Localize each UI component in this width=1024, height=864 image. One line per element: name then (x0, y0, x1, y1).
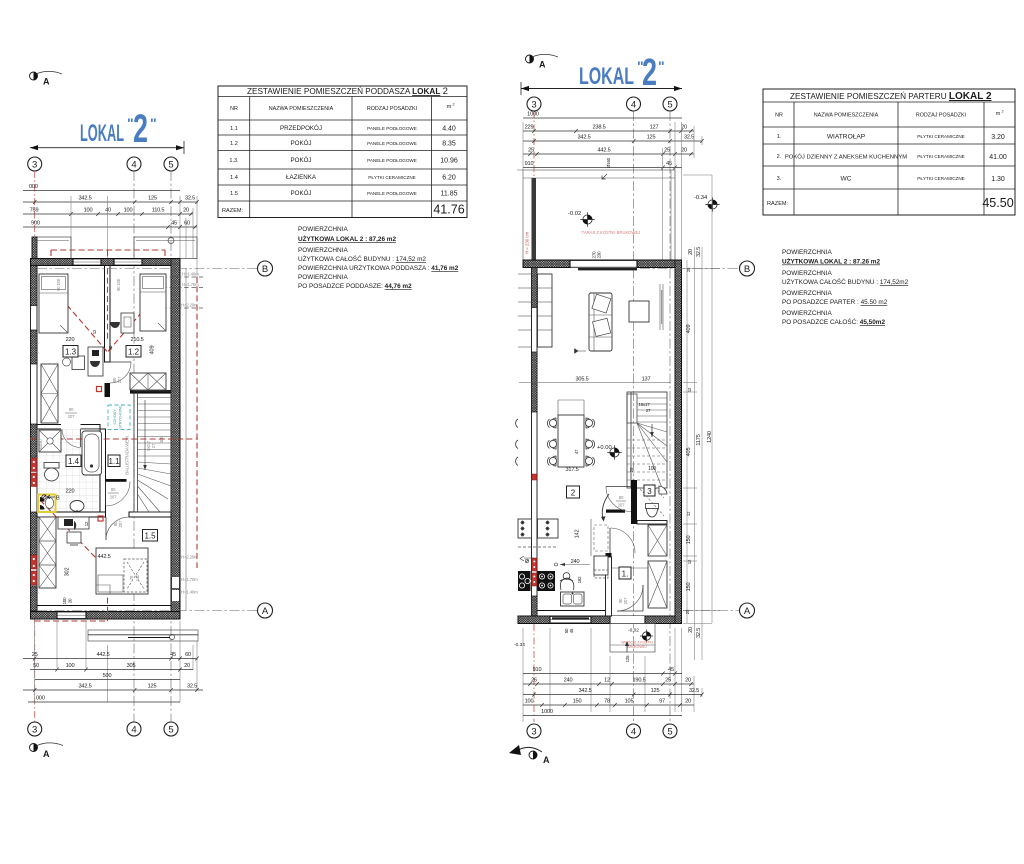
svg-text:229: 229 (525, 125, 534, 131)
svg-text:1.5: 1.5 (144, 532, 156, 541)
svg-text:150: 150 (686, 536, 692, 545)
svg-text:16x17: 16x17 (639, 402, 651, 407)
svg-text:240: 240 (571, 559, 580, 565)
svg-text:NR: NR (230, 106, 238, 112)
svg-text:H=2.20m: H=2.20m (181, 303, 198, 308)
svg-text:1.2: 1.2 (128, 348, 140, 357)
svg-text:12: 12 (687, 559, 692, 564)
svg-text:": " (150, 115, 157, 131)
svg-text:125: 125 (647, 135, 656, 141)
svg-text:142: 142 (575, 530, 581, 539)
svg-text:1.: 1. (622, 570, 629, 579)
svg-text:PANELE PODŁOGOWE: PANELE PODŁOGOWE (367, 126, 417, 131)
svg-text:NR: NR (775, 113, 783, 119)
svg-text:3: 3 (32, 725, 37, 736)
svg-text:POWIERZCHNIA: POWIERZCHNIA (782, 270, 832, 277)
svg-text:4: 4 (131, 160, 136, 171)
svg-text:442.5: 442.5 (97, 652, 110, 658)
svg-text:182: 182 (577, 576, 582, 583)
svg-text:25: 25 (665, 678, 671, 684)
svg-text:PANELE PODŁOGOWE: PANELE PODŁOGOWE (367, 191, 417, 196)
svg-text:150: 150 (573, 699, 582, 705)
svg-text:-0.34: -0.34 (514, 642, 525, 648)
svg-text:317.5: 317.5 (566, 467, 579, 473)
svg-text:PO POSADZCE CAŁOŚĆ: 45,50m2: PO POSADZCE CAŁOŚĆ: 45,50m2 (782, 317, 885, 326)
svg-text:1.3.: 1.3. (229, 158, 239, 164)
svg-text:50: 50 (33, 663, 39, 669)
svg-text:NAZWA POMIESZCZENIA: NAZWA POMIESZCZENIA (814, 113, 879, 119)
svg-text:20: 20 (685, 678, 691, 684)
svg-text:100: 100 (66, 663, 75, 669)
svg-text:80: 80 (619, 495, 624, 500)
svg-text:A: A (262, 606, 269, 617)
svg-text:405: 405 (686, 448, 692, 457)
svg-text:POKÓJ: POKÓJ (291, 140, 312, 147)
svg-text:25: 25 (32, 652, 38, 658)
svg-text:000: 000 (29, 184, 38, 190)
svg-text:190.5: 190.5 (633, 678, 646, 684)
svg-text:90 100: 90 100 (56, 278, 61, 291)
svg-text:137: 137 (642, 377, 651, 383)
svg-text:12: 12 (92, 329, 97, 334)
svg-text:-0.34: -0.34 (694, 195, 708, 201)
svg-text:78: 78 (604, 699, 610, 705)
svg-text:A: A (43, 77, 50, 87)
svg-text:RODZAJ POSADZKI: RODZAJ POSADZKI (367, 106, 417, 112)
svg-text:207: 207 (623, 597, 628, 604)
svg-text:PŁYTKI CERAMICZNE: PŁYTKI CERAMICZNE (917, 154, 964, 159)
svg-text:H=1.40m: H=1.40m (182, 272, 199, 277)
svg-text:500: 500 (103, 673, 112, 679)
svg-text:12: 12 (687, 387, 692, 392)
svg-text:12: 12 (686, 511, 691, 516)
svg-text:20: 20 (688, 627, 694, 633)
svg-text:302: 302 (65, 568, 71, 577)
svg-text:25: 25 (686, 267, 691, 272)
svg-text:PANELE PODŁOGOWE: PANELE PODŁOGOWE (367, 158, 417, 163)
svg-text:342.5: 342.5 (79, 684, 92, 690)
svg-text:32.5: 32.5 (689, 688, 699, 694)
svg-text:32.5: 32.5 (696, 628, 702, 638)
svg-text:40: 40 (105, 208, 111, 214)
svg-text:B: B (744, 264, 750, 275)
svg-text:PRZEDPOKÓJ: PRZEDPOKÓJ (280, 125, 322, 132)
svg-text:TARAS Z KOSTKI BRUKOWEJ: TARAS Z KOSTKI BRUKOWEJ (582, 230, 641, 235)
svg-text:41.00: 41.00 (989, 154, 1007, 161)
svg-text:POWIERZCHNIA: POWIERZCHNIA (782, 290, 832, 297)
svg-text:900: 900 (31, 221, 40, 227)
svg-text:-0.02: -0.02 (628, 628, 639, 634)
svg-text:1000: 1000 (527, 112, 539, 118)
svg-text:5: 5 (667, 727, 672, 738)
svg-text:12: 12 (84, 521, 89, 526)
svg-text:305: 305 (127, 663, 136, 669)
svg-text:PŁYTKI CERAMICZNE: PŁYTKI CERAMICZNE (917, 134, 964, 139)
svg-text:127: 127 (650, 125, 659, 131)
svg-text:5: 5 (168, 725, 173, 736)
svg-text:60: 60 (185, 652, 191, 658)
svg-text:150: 150 (686, 583, 692, 592)
svg-text:3.: 3. (777, 176, 782, 182)
svg-text:NAZWA POMIESZCZENIA: NAZWA POMIESZCZENIA (269, 106, 334, 112)
svg-text:1.5: 1.5 (230, 191, 238, 197)
svg-text:A: A (744, 606, 751, 617)
svg-text:H = 230 cm: H = 230 cm (525, 231, 530, 254)
svg-text:20: 20 (68, 598, 73, 603)
svg-text:H=1.70m: H=1.70m (182, 282, 199, 287)
svg-text:1.1: 1.1 (108, 457, 120, 466)
svg-text:POKÓJ: POKÓJ (291, 157, 312, 164)
svg-text:UŻYTKOWA LOKAL 2 : 87.26 m2: UŻYTKOWA LOKAL 2 : 87.26 m2 (782, 257, 880, 266)
svg-text:3: 3 (647, 487, 652, 496)
svg-text:B: B (56, 496, 60, 502)
svg-text:1175: 1175 (696, 434, 702, 445)
svg-text:ZESTAWIENIE POMIESZCZEŃ PODDAS: ZESTAWIENIE POMIESZCZEŃ PODDASZA LOKAL 2 (247, 86, 448, 97)
svg-text:105: 105 (625, 699, 634, 705)
svg-text:910: 910 (533, 667, 542, 673)
svg-text:POWIERZCHNIA URZYTKOWA PODDASZ: POWIERZCHNIA URZYTKOWA PODDASZA : 41,76 … (298, 265, 459, 272)
svg-text:125: 125 (651, 688, 660, 694)
svg-text:A: A (539, 60, 546, 70)
svg-text:409: 409 (150, 346, 156, 355)
svg-text:25: 25 (629, 467, 634, 472)
svg-text:11.85: 11.85 (441, 191, 458, 198)
svg-text:B: B (262, 264, 268, 275)
svg-text:60: 60 (184, 221, 190, 227)
svg-text:ZESTAWIENIE POMIESZCZEŃ PARTER: ZESTAWIENIE POMIESZCZEŃ PARTERU LOKAL 2 (790, 91, 992, 102)
svg-text:PŁYTKI CERAMICZNE: PŁYTKI CERAMICZNE (368, 175, 415, 180)
svg-text:WIATROŁAP: WIATROŁAP (827, 134, 866, 141)
svg-text:100: 100 (648, 466, 656, 472)
svg-text:LOKAL: LOKAL (579, 63, 634, 90)
svg-text:80: 80 (111, 487, 116, 492)
svg-text:20: 20 (685, 699, 691, 705)
svg-text:3.20: 3.20 (991, 134, 1005, 141)
svg-text:100: 100 (525, 699, 534, 705)
svg-text:342.5: 342.5 (578, 135, 591, 141)
svg-text:45.50: 45.50 (982, 196, 1013, 210)
svg-text:2: 2 (571, 489, 576, 498)
svg-text:45: 45 (171, 221, 177, 227)
svg-text:1.1: 1.1 (230, 126, 238, 132)
svg-text:100: 100 (124, 208, 133, 214)
svg-text:409: 409 (686, 325, 692, 334)
svg-text:-0.02: -0.02 (568, 211, 581, 217)
svg-text:3: 3 (32, 160, 37, 171)
svg-text:000: 000 (36, 696, 45, 702)
svg-text:100: 100 (62, 597, 67, 604)
svg-text:PO POSADZCE PODDASZE: 44,76 m: PO POSADZCE PODDASZE: 44,76 m2 (298, 283, 412, 290)
svg-text:1.4: 1.4 (230, 175, 238, 181)
svg-text:1.30: 1.30 (991, 176, 1005, 183)
svg-text:207: 207 (110, 495, 117, 500)
svg-text:m: m (447, 104, 452, 110)
svg-text:32.5: 32.5 (696, 247, 702, 257)
svg-text:25: 25 (664, 148, 670, 154)
svg-text:32.5: 32.5 (684, 135, 694, 141)
svg-text:RODZAJ POSADZKI: RODZAJ POSADZKI (916, 113, 966, 119)
svg-text:4: 4 (631, 727, 636, 738)
svg-text:210.5: 210.5 (131, 337, 144, 343)
svg-text:125: 125 (148, 196, 157, 202)
svg-text:POKÓJ DZIENNY Z ANEKSEM KUCHEN: POKÓJ DZIENNY Z ANEKSEM KUCHENNYM (785, 154, 907, 161)
svg-text:80: 80 (69, 407, 74, 412)
svg-text:UŻYTKOWA CAŁOŚĆ BUDYNU : 174,5: UŻYTKOWA CAŁOŚĆ BUDYNU : 174,52 m2 (298, 254, 426, 263)
svg-text:+0.00: +0.00 (597, 445, 612, 451)
svg-text:27: 27 (151, 443, 156, 448)
svg-text:5: 5 (168, 160, 173, 171)
svg-text:WC: WC (841, 176, 852, 183)
svg-text:32.5: 32.5 (185, 196, 195, 202)
svg-text:BRUKOWEJ: BRUKOWEJ (627, 645, 647, 649)
svg-text:140: 140 (135, 574, 140, 581)
svg-text:1240: 1240 (707, 431, 713, 443)
svg-text:220: 220 (66, 489, 75, 495)
svg-text:LOKAL: LOKAL (80, 120, 124, 147)
svg-text:27: 27 (646, 408, 651, 413)
svg-text:342.5: 342.5 (579, 688, 592, 694)
svg-text:125: 125 (625, 655, 630, 662)
svg-text:A: A (43, 749, 50, 759)
svg-text:442.5: 442.5 (98, 554, 111, 560)
svg-text:45: 45 (666, 161, 672, 167)
svg-text:97: 97 (659, 699, 665, 705)
svg-text:342.5: 342.5 (79, 196, 92, 202)
svg-text:90: 90 (108, 345, 113, 350)
svg-text:POWIERZCHNIA: POWIERZCHNIA (298, 226, 348, 233)
svg-text:3: 3 (531, 727, 536, 738)
svg-text:220: 220 (66, 337, 75, 343)
svg-text:41.76: 41.76 (433, 203, 464, 217)
svg-text:12: 12 (604, 678, 610, 684)
svg-text:100: 100 (84, 208, 93, 214)
svg-text:SCHODY: SCHODY (113, 409, 117, 425)
svg-text:1.: 1. (777, 134, 782, 140)
svg-text:20: 20 (681, 148, 687, 154)
svg-text:4: 4 (131, 725, 136, 736)
svg-text:4.40: 4.40 (442, 126, 456, 133)
svg-text:PANELE PODŁOGOWE: PANELE PODŁOGOWE (367, 141, 417, 146)
svg-text:90 100: 90 100 (116, 278, 121, 291)
svg-text:90x90: 90x90 (38, 439, 43, 451)
svg-text:2: 2 (1002, 110, 1004, 114)
svg-text:759: 759 (30, 208, 39, 214)
svg-text:POKÓJ: POKÓJ (291, 190, 312, 197)
svg-text:45: 45 (170, 652, 176, 658)
svg-text:405: 405 (159, 436, 164, 443)
svg-text:240: 240 (564, 678, 573, 684)
svg-text:8.35: 8.35 (442, 141, 456, 148)
svg-text:ŁAZIENKA: ŁAZIENKA (286, 174, 317, 181)
svg-text:m: m (996, 111, 1001, 117)
svg-text:305.5: 305.5 (576, 377, 589, 383)
svg-text:207: 207 (117, 376, 122, 383)
svg-text:10.96: 10.96 (440, 158, 458, 165)
svg-text:2: 2 (133, 107, 148, 151)
svg-text:207: 207 (118, 520, 123, 527)
svg-text:2: 2 (642, 52, 657, 94)
svg-text:125: 125 (148, 684, 157, 690)
svg-text:238.5: 238.5 (593, 125, 606, 131)
svg-text:47: 47 (574, 449, 579, 454)
svg-text:45: 45 (569, 628, 574, 633)
svg-text:H=2.20m: H=2.20m (181, 555, 198, 560)
svg-text:2.: 2. (777, 154, 782, 160)
svg-text:32.5: 32.5 (187, 684, 197, 690)
svg-text:A: A (543, 755, 550, 765)
svg-text:3: 3 (531, 100, 536, 111)
svg-text:PO POSADZCE PARTER : 45.50 m2: PO POSADZCE PARTER : 45.50 m2 (782, 299, 888, 306)
svg-text:BALUSTRADA WEW.: BALUSTRADA WEW. (125, 435, 130, 475)
svg-text:25: 25 (531, 678, 537, 684)
svg-text:1.4: 1.4 (68, 457, 80, 466)
svg-text:230: 230 (597, 251, 602, 258)
svg-text:H=1.70m: H=1.70m (181, 577, 198, 582)
svg-text:45: 45 (668, 667, 674, 673)
svg-text:STRYCHOWE: STRYCHOWE (119, 405, 123, 429)
svg-text:POWIERZCHNIA: POWIERZCHNIA (298, 274, 348, 281)
svg-text:25: 25 (685, 609, 690, 614)
svg-text:UŻYTKOWA CAŁOŚĆ BUDYNU : 174,5: UŻYTKOWA CAŁOŚĆ BUDYNU : 174,52m2 (782, 277, 909, 286)
svg-text:20: 20 (688, 249, 694, 255)
svg-text:RAZEM:: RAZEM: (222, 208, 244, 214)
svg-text:H=1.40m: H=1.40m (181, 590, 198, 595)
svg-text:207: 207 (68, 414, 75, 419)
svg-text:5: 5 (667, 100, 672, 111)
svg-text:": " (658, 58, 665, 74)
svg-text:78: 78 (129, 575, 134, 580)
svg-text:POWIERZCHNIA: POWIERZCHNIA (782, 310, 832, 317)
svg-text:POWIERZCHNIA: POWIERZCHNIA (782, 249, 832, 256)
svg-text:Ø160: Ø160 (606, 157, 611, 168)
svg-text:UŻYTKOWA LOKAL 2 : 87,26 m2: UŻYTKOWA LOKAL 2 : 87,26 m2 (298, 234, 396, 243)
svg-text:1.3: 1.3 (65, 348, 77, 357)
svg-text:POWIERZCHNIA: POWIERZCHNIA (298, 247, 348, 254)
svg-text:110.5: 110.5 (152, 208, 165, 214)
svg-text:20: 20 (184, 663, 190, 669)
svg-text:207: 207 (618, 503, 625, 508)
svg-text:1000: 1000 (541, 709, 553, 715)
svg-text:4: 4 (631, 100, 636, 111)
svg-text:442.5: 442.5 (598, 148, 611, 154)
svg-text:910: 910 (525, 161, 534, 167)
svg-text:2: 2 (453, 103, 455, 107)
svg-text:20: 20 (183, 208, 189, 214)
svg-text:1.2: 1.2 (230, 141, 238, 147)
svg-text:PŁYTKI CERAMICZNE: PŁYTKI CERAMICZNE (917, 176, 964, 181)
svg-text:RAZEM:: RAZEM: (767, 201, 789, 207)
svg-text:6.20: 6.20 (442, 175, 456, 182)
